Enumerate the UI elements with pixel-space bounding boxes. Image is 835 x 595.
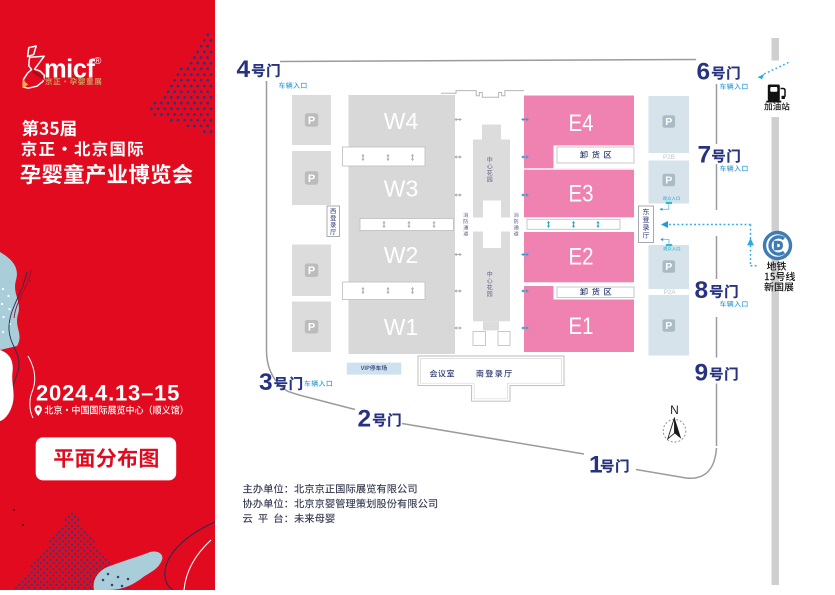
svg-text:6: 6: [697, 59, 711, 86]
svg-text:P: P: [665, 175, 672, 187]
svg-text:P2B: P2B: [663, 154, 675, 161]
svg-text:P: P: [308, 322, 315, 334]
svg-text:2024.4.13–15: 2024.4.13–15: [36, 381, 180, 406]
svg-text:2: 2: [358, 406, 372, 433]
svg-text:N: N: [670, 403, 679, 417]
svg-text:P: P: [308, 265, 315, 277]
svg-text:1: 1: [589, 452, 603, 479]
svg-text:P: P: [308, 115, 315, 127]
svg-text:W3: W3: [384, 176, 419, 202]
svg-text:E4: E4: [569, 110, 594, 137]
svg-text:E2: E2: [569, 243, 594, 270]
svg-text:P: P: [665, 116, 672, 128]
svg-text:8: 8: [695, 277, 709, 304]
svg-text:P: P: [665, 261, 672, 273]
svg-text:9: 9: [695, 360, 709, 387]
svg-text:4: 4: [237, 56, 251, 83]
svg-text:P: P: [308, 173, 315, 185]
svg-text:®: ®: [94, 56, 102, 67]
svg-text:E3: E3: [569, 181, 594, 208]
svg-text:W4: W4: [384, 108, 419, 134]
svg-text:P: P: [665, 320, 672, 332]
svg-text:7: 7: [698, 142, 712, 169]
svg-text:W1: W1: [384, 314, 419, 340]
svg-text:W2: W2: [384, 242, 419, 268]
svg-text:E1: E1: [569, 313, 594, 340]
svg-text:3: 3: [259, 369, 273, 396]
svg-text:P2A: P2A: [664, 289, 677, 296]
